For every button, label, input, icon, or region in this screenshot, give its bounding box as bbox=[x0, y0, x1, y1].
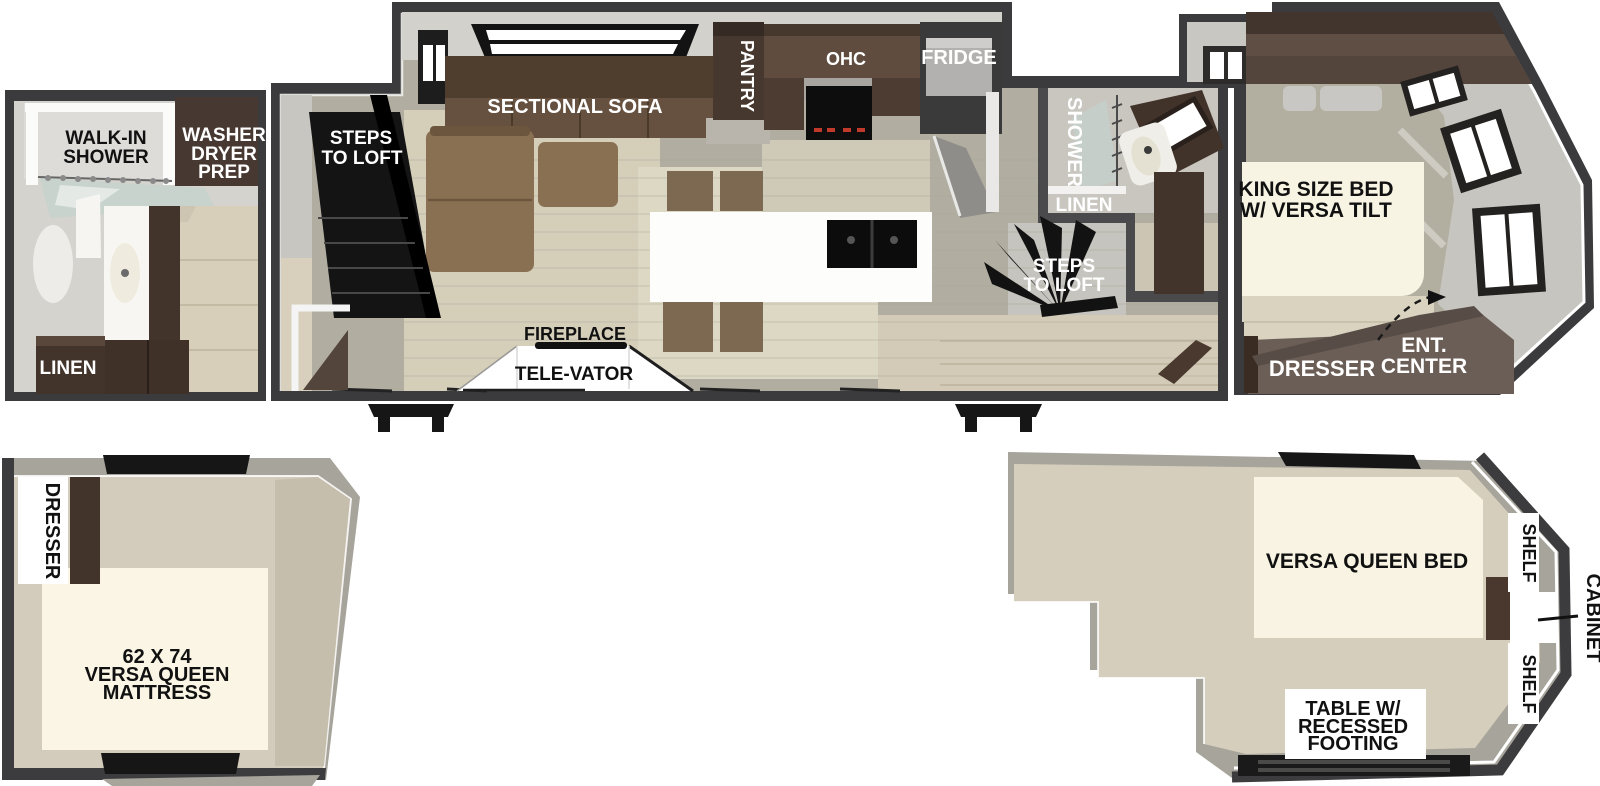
svg-text:FOOTING: FOOTING bbox=[1307, 733, 1398, 755]
svg-text:LINEN: LINEN bbox=[1056, 195, 1113, 216]
svg-text:FIREPLACE: FIREPLACE bbox=[524, 324, 626, 344]
svg-text:ENT.: ENT. bbox=[1401, 334, 1447, 357]
svg-text:LINEN: LINEN bbox=[40, 358, 97, 379]
svg-text:CABINET: CABINET bbox=[1582, 574, 1600, 663]
svg-text:OHC: OHC bbox=[826, 49, 866, 69]
svg-text:STEPS: STEPS bbox=[1033, 256, 1095, 277]
svg-text:CENTER: CENTER bbox=[1381, 355, 1467, 378]
svg-text:WALK-IN: WALK-IN bbox=[65, 128, 146, 149]
svg-text:PREP: PREP bbox=[198, 162, 250, 183]
svg-text:STEPS: STEPS bbox=[330, 128, 392, 149]
svg-text:KING SIZE BED: KING SIZE BED bbox=[1238, 178, 1393, 201]
svg-text:MATTRESS: MATTRESS bbox=[103, 682, 212, 704]
svg-text:VERSA QUEEN BED: VERSA QUEEN BED bbox=[1266, 550, 1468, 573]
svg-text:TO LOFT: TO LOFT bbox=[322, 148, 403, 169]
svg-text:FRIDGE: FRIDGE bbox=[921, 47, 997, 69]
svg-text:SECTIONAL SOFA: SECTIONAL SOFA bbox=[487, 96, 662, 118]
svg-text:SHOWER: SHOWER bbox=[63, 147, 149, 168]
svg-text:W/ VERSA TILT: W/ VERSA TILT bbox=[1240, 199, 1392, 222]
svg-text:SHOWER: SHOWER bbox=[1063, 97, 1085, 188]
svg-text:TO LOFT: TO LOFT bbox=[1024, 275, 1105, 296]
svg-text:TELE-VATOR: TELE-VATOR bbox=[515, 364, 634, 385]
svg-text:SHELF: SHELF bbox=[1519, 654, 1539, 713]
svg-text:SHELF: SHELF bbox=[1519, 523, 1539, 582]
svg-text:PANTRY: PANTRY bbox=[737, 40, 757, 112]
svg-text:WASHER: WASHER bbox=[182, 125, 266, 146]
svg-text:DRESSER: DRESSER bbox=[1269, 356, 1375, 381]
svg-text:DRESSER: DRESSER bbox=[41, 483, 63, 580]
